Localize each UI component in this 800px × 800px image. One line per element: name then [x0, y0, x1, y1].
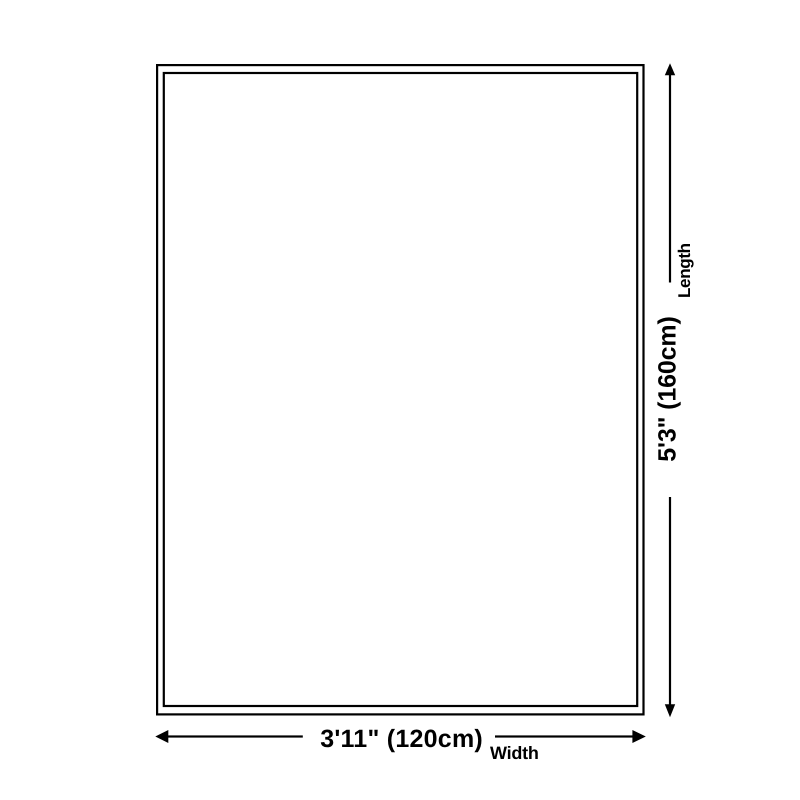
svg-text:Length: Length [675, 243, 694, 298]
svg-text:5'3" (160cm): 5'3" (160cm) [654, 316, 682, 461]
svg-text:Width: Width [490, 743, 539, 763]
svg-text:3'11" (120cm): 3'11" (120cm) [320, 725, 483, 753]
